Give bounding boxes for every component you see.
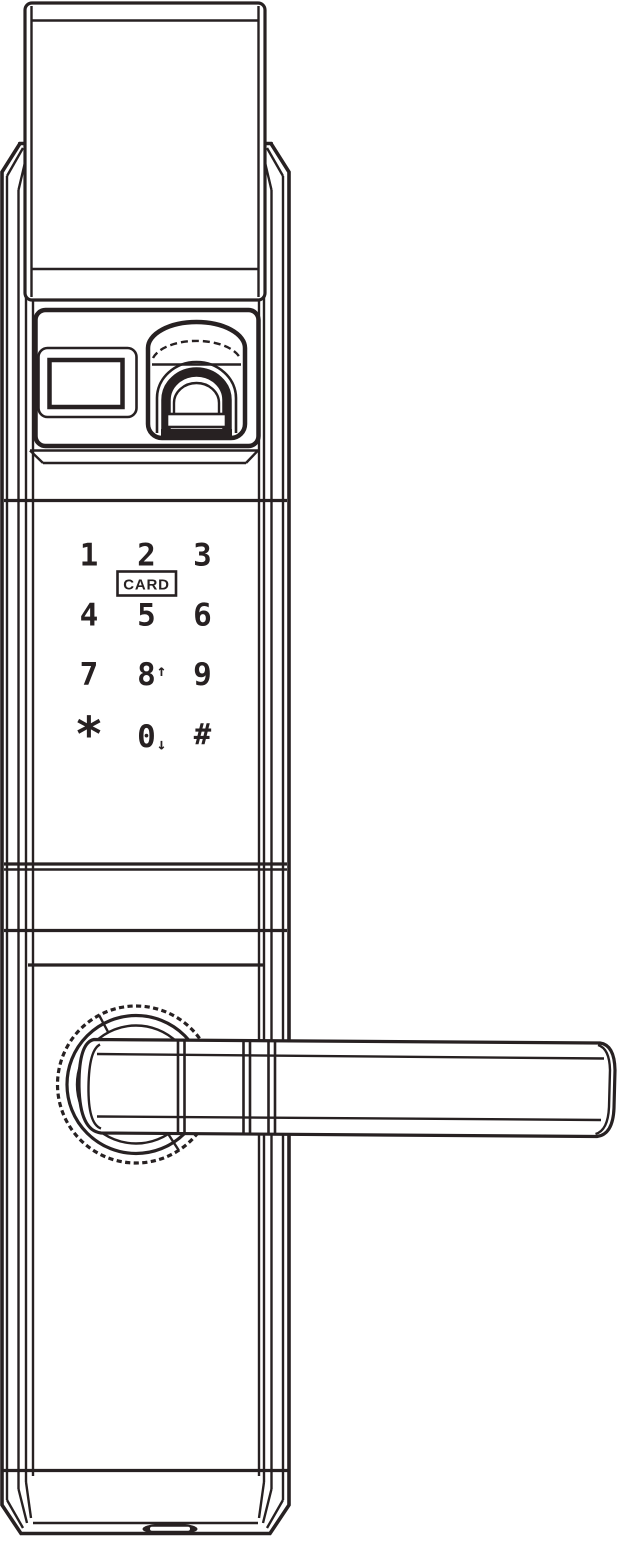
bevel-line <box>259 1482 264 1518</box>
card-reader-label: CARD <box>123 577 170 594</box>
key-hash[interactable]: # <box>194 718 212 752</box>
bottom-cap <box>143 1523 198 1535</box>
key-4[interactable]: 4 <box>80 598 99 634</box>
bevel-line <box>26 1482 31 1518</box>
fingerprint-scanner[interactable] <box>148 322 245 438</box>
door-lock-front-view: 1 2 3 CARD 4 5 6 7 8 ↑ 9 * 0 ↓ # <box>0 0 617 1541</box>
key-0[interactable]: 0 <box>137 719 156 755</box>
keypad: 1 2 3 CARD 4 5 6 7 8 ↑ 9 * 0 ↓ # <box>75 538 212 764</box>
card-reader[interactable]: CARD <box>118 572 177 596</box>
door-handle[interactable] <box>58 1006 616 1163</box>
volume-up-arrow: ↑ <box>157 661 167 680</box>
module-bottom-bevel <box>30 451 258 464</box>
scanner-window-base <box>167 414 226 427</box>
fingerprint-module <box>30 310 259 463</box>
key-9[interactable]: 9 <box>193 657 212 693</box>
key-1[interactable]: 1 <box>80 538 99 574</box>
bottom-port-slot <box>150 1527 190 1531</box>
key-7[interactable]: 7 <box>80 657 99 693</box>
key-8[interactable]: 8 <box>137 657 156 693</box>
bevel-line <box>263 1489 272 1523</box>
volume-down-arrow: ↓ <box>157 735 167 754</box>
latch-cover-outline <box>25 3 265 300</box>
lock-technical-drawing: 1 2 3 CARD 4 5 6 7 8 ↑ 9 * 0 ↓ # <box>0 0 617 1541</box>
bevel-band-corner <box>246 451 258 464</box>
key-5[interactable]: 5 <box>137 598 156 634</box>
key-3[interactable]: 3 <box>193 538 212 574</box>
key-2[interactable]: 2 <box>137 538 156 574</box>
key-star[interactable]: * <box>75 707 104 763</box>
key-6[interactable]: 6 <box>193 598 212 634</box>
bevel-line <box>19 1489 28 1523</box>
handle-lever[interactable] <box>79 1040 615 1137</box>
top-latch-cover <box>25 3 265 300</box>
